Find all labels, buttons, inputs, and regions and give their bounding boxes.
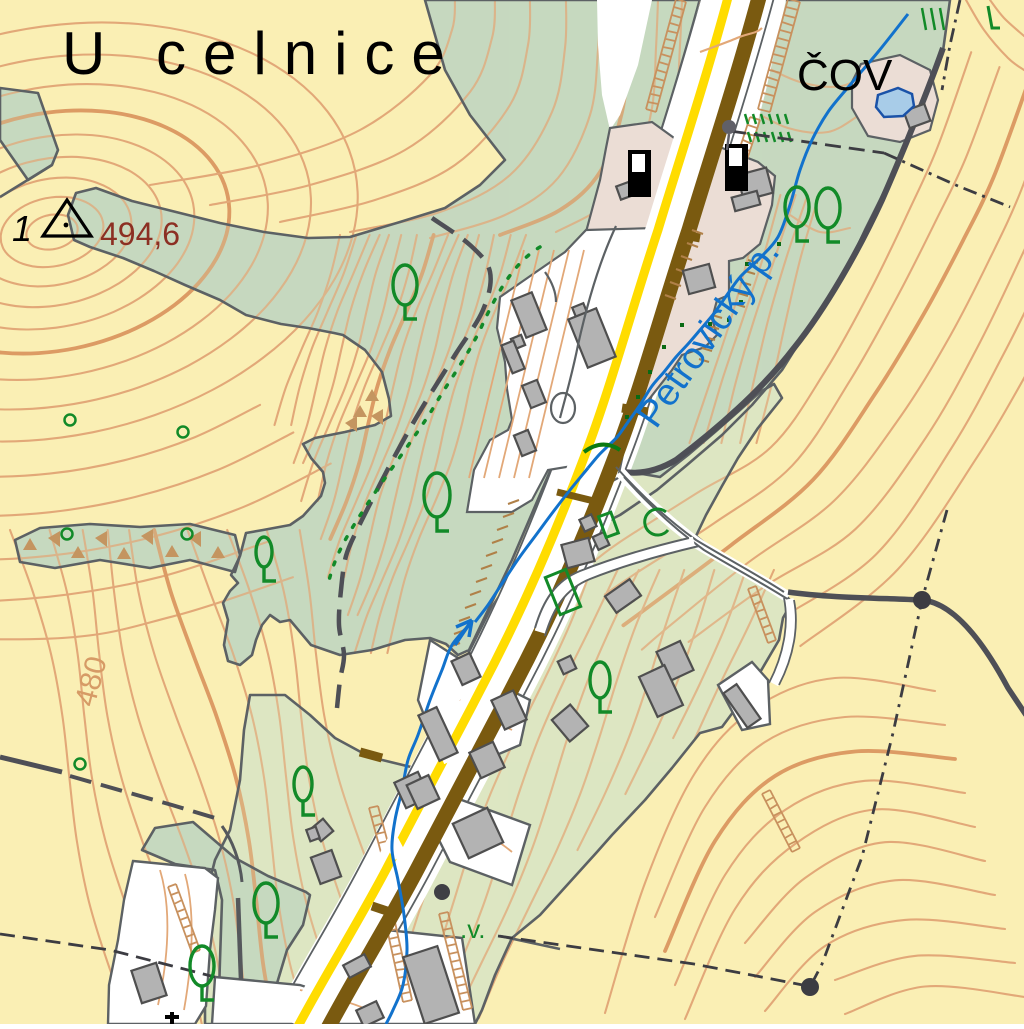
- svg-text:U celnice: U celnice: [62, 20, 462, 87]
- svg-text:.v.: .v.: [460, 914, 486, 944]
- svg-text:494,6: 494,6: [100, 216, 180, 252]
- svg-text:1: 1: [12, 208, 32, 249]
- svg-text:ČOV: ČOV: [797, 50, 893, 100]
